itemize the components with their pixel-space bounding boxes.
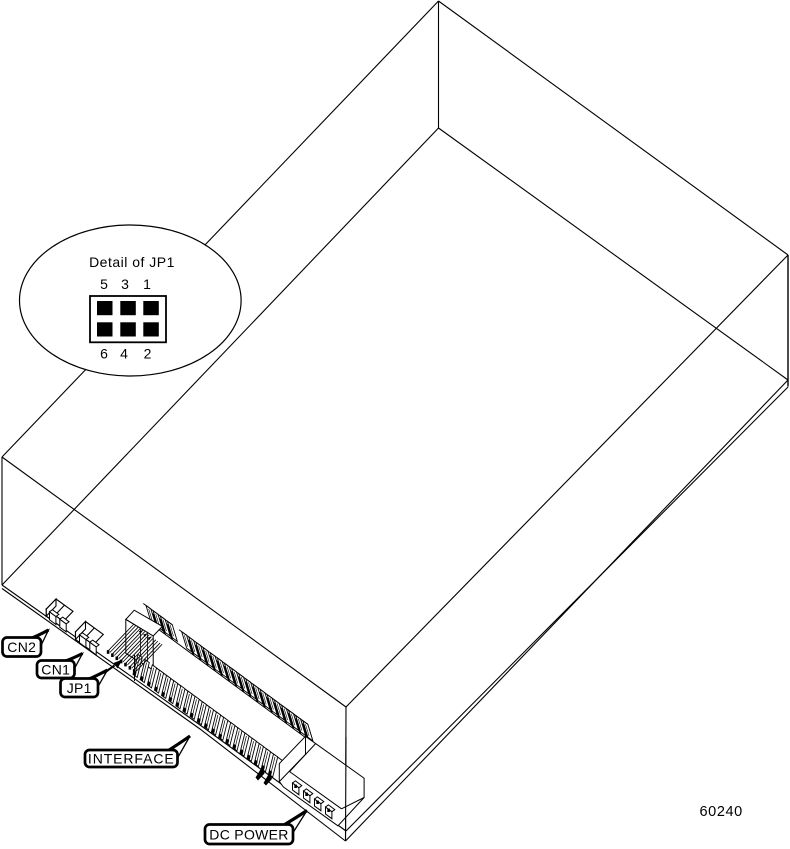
svg-text:2: 2 bbox=[144, 346, 152, 362]
svg-text:CN2: CN2 bbox=[7, 639, 36, 655]
svg-text:4: 4 bbox=[120, 346, 128, 362]
svg-text:DC POWER: DC POWER bbox=[209, 826, 288, 842]
svg-text:5: 5 bbox=[100, 276, 108, 292]
svg-text:JP1: JP1 bbox=[67, 680, 92, 696]
svg-text:60240: 60240 bbox=[700, 804, 743, 820]
svg-text:CN1: CN1 bbox=[41, 661, 70, 677]
svg-text:3: 3 bbox=[121, 276, 129, 292]
svg-text:Detail of JP1: Detail of JP1 bbox=[89, 254, 175, 270]
svg-text:INTERFACE: INTERFACE bbox=[88, 751, 175, 767]
svg-text:6: 6 bbox=[100, 346, 108, 362]
svg-text:1: 1 bbox=[143, 276, 151, 292]
